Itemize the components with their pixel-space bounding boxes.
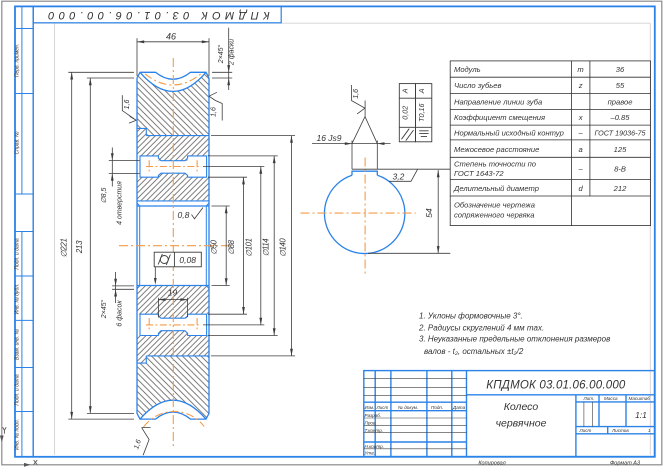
svg-text:ГОСТ 1643-72: ГОСТ 1643-72 bbox=[454, 169, 504, 178]
svg-text:1,6: 1,6 bbox=[353, 89, 360, 99]
svg-text:19: 19 bbox=[168, 288, 178, 298]
svg-text:Число зубьев: Число зубьев bbox=[454, 81, 501, 90]
svg-text:Лист: Лист bbox=[579, 428, 592, 433]
svg-text:1,6: 1,6 bbox=[133, 439, 143, 451]
svg-text:1. Уклоны формовочные 3°.: 1. Уклоны формовочные 3°. bbox=[419, 312, 523, 321]
svg-text:Листов: Листов bbox=[611, 428, 629, 433]
svg-text:2 фаски: 2 фаски bbox=[229, 39, 236, 66]
svg-text:∅140: ∅140 bbox=[278, 238, 287, 257]
svg-text:55: 55 bbox=[616, 81, 625, 90]
svg-text:Масштаб: Масштаб bbox=[629, 396, 651, 401]
svg-text:Т0,16: Т0,16 bbox=[417, 104, 426, 122]
svg-text:Утв.: Утв. bbox=[365, 451, 375, 456]
svg-text:Обозначение чертежа: Обозначение чертежа bbox=[454, 201, 535, 210]
svg-text:36: 36 bbox=[616, 65, 625, 74]
svg-text:Справ. №: Справ. № bbox=[15, 131, 21, 154]
svg-text:1:1: 1:1 bbox=[635, 410, 647, 420]
svg-text:Разраб.: Разраб. bbox=[365, 413, 382, 418]
svg-text:212: 212 bbox=[613, 184, 627, 193]
svg-text:1,6: 1,6 bbox=[211, 107, 218, 117]
svg-text:Лит.: Лит. bbox=[583, 396, 595, 401]
svg-text:Пров.: Пров. bbox=[365, 420, 377, 425]
svg-text:a: a bbox=[578, 145, 582, 154]
svg-text:0,08: 0,08 bbox=[179, 255, 196, 265]
svg-text:3. Неуказанные предельные откл: 3. Неуказанные предельные отклонения раз… bbox=[419, 335, 610, 344]
svg-text:Дата: Дата bbox=[452, 405, 466, 410]
svg-text:Лист: Лист bbox=[376, 405, 389, 410]
svg-text:125: 125 bbox=[614, 145, 627, 154]
svg-text:0,8: 0,8 bbox=[178, 210, 190, 220]
svg-text:Коэффициент смещения: Коэффициент смещения bbox=[454, 113, 545, 122]
svg-text:правое: правое bbox=[608, 97, 633, 106]
svg-text:Изм.: Изм. bbox=[365, 405, 375, 410]
svg-text:4 отверстия: 4 отверстия bbox=[117, 181, 124, 225]
svg-text:А: А bbox=[401, 88, 410, 94]
svg-text:∅8,5: ∅8,5 bbox=[101, 187, 108, 203]
svg-text:Взам. инв. №: Взам. инв. № bbox=[15, 328, 21, 360]
svg-text:валов - t₂, остальных ±t₂/2: валов - t₂, остальных ±t₂/2 bbox=[424, 347, 524, 356]
svg-text:6 фасок: 6 фасок bbox=[117, 300, 124, 327]
svg-text:ГОСТ 19036-75: ГОСТ 19036-75 bbox=[595, 129, 647, 138]
svg-text:0,02: 0,02 bbox=[401, 106, 410, 120]
svg-text:–0.85: –0.85 bbox=[609, 113, 630, 122]
svg-text:КПДМОК 03.01.06.00.000: КПДМОК 03.01.06.00.000 bbox=[486, 379, 626, 391]
svg-text:∅88: ∅88 bbox=[227, 239, 236, 254]
svg-text:№ докум.: № докум. bbox=[398, 405, 418, 410]
svg-text:Нормальный исходный контур: Нормальный исходный контур bbox=[454, 129, 564, 138]
svg-text:8-В: 8-В bbox=[614, 165, 626, 174]
svg-text:2. Радиусы скруглений 4 мм mах: 2. Радиусы скруглений 4 мм mах. bbox=[418, 323, 544, 332]
svg-text:∅221: ∅221 bbox=[60, 238, 69, 257]
svg-text:54: 54 bbox=[424, 208, 434, 218]
svg-text:46: 46 bbox=[166, 32, 176, 42]
svg-text:Подп. и дата: Подп. и дата bbox=[15, 238, 21, 270]
svg-text:КПДМОК 03.01.06.00.000: КПДМОК 03.01.06.00.000 bbox=[44, 9, 270, 21]
svg-text:2×45°: 2×45° bbox=[100, 300, 108, 320]
svg-text:∅101: ∅101 bbox=[244, 238, 253, 256]
svg-text:3,2: 3,2 bbox=[393, 172, 405, 182]
svg-text:Подп.: Подп. bbox=[431, 405, 443, 410]
svg-text:Подп. и дата: Подп. и дата bbox=[15, 374, 21, 406]
svg-text:Перв. примен.: Перв. примен. bbox=[15, 44, 21, 77]
svg-text:червячное: червячное bbox=[496, 417, 547, 429]
svg-text:–: – bbox=[577, 129, 583, 138]
svg-text:Т.контр.: Т.контр. bbox=[365, 428, 384, 433]
svg-text:А: А bbox=[417, 88, 426, 94]
svg-text:Копировал: Копировал bbox=[478, 461, 505, 467]
svg-text:–: – bbox=[577, 165, 583, 174]
svg-text:2×45°: 2×45° bbox=[217, 45, 225, 65]
svg-text:Делительный диаметр: Делительный диаметр bbox=[453, 184, 539, 193]
svg-text:213: 213 bbox=[75, 240, 84, 254]
svg-text:Межосевое расстояние: Межосевое расстояние bbox=[454, 145, 539, 154]
svg-text:m: m bbox=[577, 65, 583, 74]
svg-text:z: z bbox=[578, 81, 583, 90]
svg-text:1: 1 bbox=[648, 428, 651, 433]
svg-text:Степень точности по: Степень точности по bbox=[454, 160, 536, 169]
svg-text:1,6: 1,6 bbox=[124, 100, 131, 110]
svg-text:Инв. № подл.: Инв. № подл. bbox=[15, 419, 21, 450]
svg-text:Н.контр.: Н.контр. bbox=[365, 444, 384, 449]
svg-text:Инв. № дубл.: Инв. № дубл. bbox=[15, 284, 21, 315]
svg-text:Направление линии зуба: Направление линии зуба bbox=[454, 97, 542, 106]
svg-text:сопряженного червяка: сопряженного червяка bbox=[454, 211, 534, 220]
svg-text:∅50: ∅50 bbox=[209, 239, 218, 254]
svg-text:d: d bbox=[578, 184, 583, 193]
svg-text:∅114: ∅114 bbox=[262, 238, 271, 257]
svg-text:Формат А3: Формат А3 bbox=[610, 461, 641, 467]
svg-text:Модуль: Модуль bbox=[454, 65, 481, 74]
svg-text:Масса: Масса bbox=[604, 396, 618, 401]
svg-text:16 Js9: 16 Js9 bbox=[316, 133, 341, 143]
svg-text:x: x bbox=[578, 113, 584, 122]
svg-text:Колесо: Колесо bbox=[504, 401, 539, 413]
